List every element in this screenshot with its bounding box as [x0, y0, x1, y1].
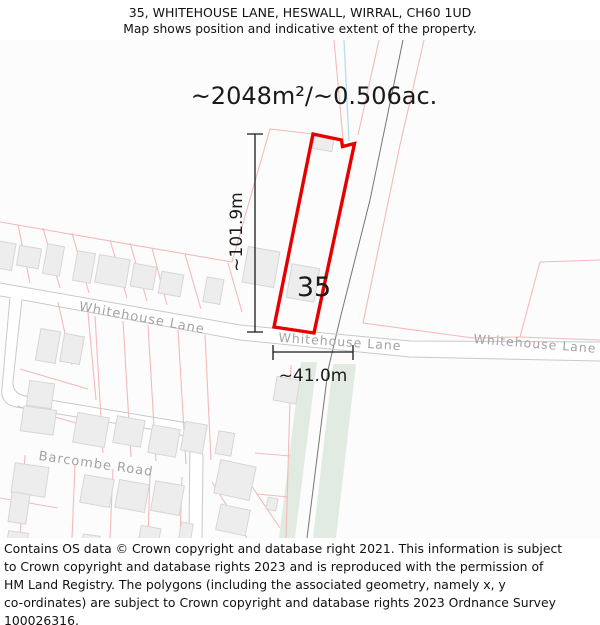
page-title: 35, WHITEHOUSE LANE, HESWALL, WIRRAL, CH…	[0, 0, 600, 21]
map-svg: Whitehouse Lane Whitehouse Lane Whitehou…	[0, 40, 600, 538]
building	[8, 492, 30, 524]
building	[115, 480, 149, 513]
property-map-page: 35, WHITEHOUSE LANE, HESWALL, WIRRAL, CH…	[0, 0, 600, 625]
building	[242, 246, 280, 287]
plot-number-label: 35	[297, 272, 331, 303]
building	[20, 406, 56, 435]
footer-line: Contains OS data © Crown copyright and d…	[4, 540, 600, 558]
page-subtitle: Map shows position and indicative extent…	[0, 21, 600, 37]
building	[16, 245, 41, 269]
building	[158, 271, 183, 296]
building	[60, 333, 85, 364]
building	[113, 416, 145, 447]
building	[95, 255, 130, 288]
building	[151, 481, 185, 516]
copyright-footer: Contains OS data © Crown copyright and d…	[0, 538, 600, 625]
building	[148, 425, 180, 457]
width-dimension-label: ~41.0m	[279, 366, 348, 386]
map-canvas: Whitehouse Lane Whitehouse Lane Whitehou…	[0, 40, 600, 538]
building	[130, 263, 157, 290]
footer-line: 100026316.	[4, 612, 600, 625]
footer-line: to Crown copyright and database rights 2…	[4, 558, 600, 576]
building	[181, 421, 208, 453]
building	[215, 431, 235, 456]
building	[73, 412, 110, 447]
header: 35, WHITEHOUSE LANE, HESWALL, WIRRAL, CH…	[0, 0, 600, 40]
building	[80, 475, 114, 508]
footer-line: co-ordinates) are subject to Crown copyr…	[4, 594, 600, 612]
height-dimension-label: ~101.9m	[227, 192, 247, 271]
building	[266, 497, 278, 511]
building	[216, 504, 251, 536]
area-label: ~2048m²/~0.506ac.	[191, 82, 438, 110]
footer-line: HM Land Registry. The polygons (includin…	[4, 576, 600, 594]
building	[214, 460, 256, 501]
building	[26, 380, 54, 408]
building	[203, 277, 224, 305]
building	[179, 522, 194, 538]
